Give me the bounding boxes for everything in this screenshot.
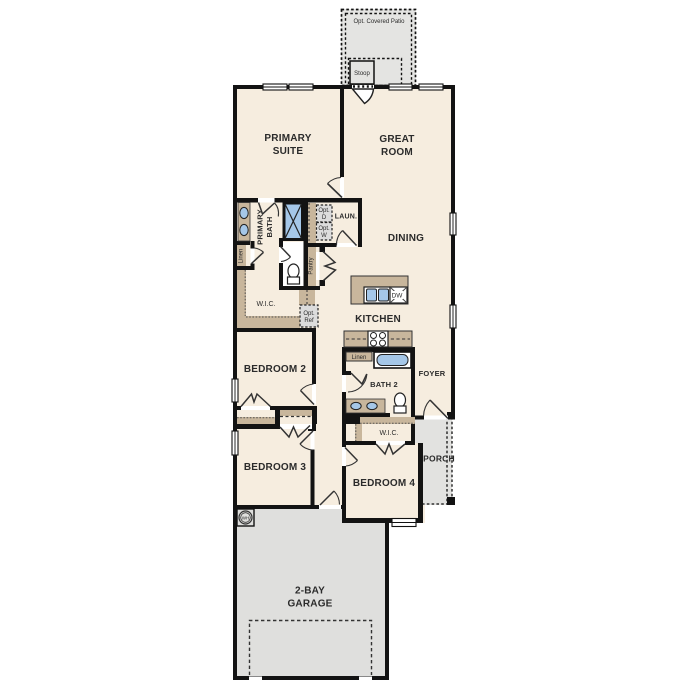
- svg-text:Pantry: Pantry: [309, 257, 315, 274]
- svg-text:Opt.: Opt.: [318, 208, 330, 214]
- svg-text:BEDROOM 2: BEDROOM 2: [244, 364, 307, 375]
- svg-text:ROOM: ROOM: [381, 147, 413, 158]
- svg-text:Linen: Linen: [239, 249, 245, 264]
- svg-text:BATH: BATH: [265, 216, 274, 237]
- svg-text:FOYER: FOYER: [419, 369, 446, 378]
- svg-text:SUITE: SUITE: [273, 146, 304, 157]
- svg-text:Opt.: Opt.: [318, 226, 330, 232]
- svg-text:PRIMARY: PRIMARY: [264, 133, 311, 144]
- svg-text:W.I.C.: W.I.C.: [379, 430, 398, 437]
- svg-text:LAUN.: LAUN.: [335, 214, 357, 221]
- svg-text:Opt. Covered Patio: Opt. Covered Patio: [353, 19, 405, 25]
- svg-text:W: W: [321, 233, 327, 239]
- svg-text:DW: DW: [392, 293, 404, 300]
- svg-text:DINING: DINING: [388, 233, 424, 244]
- svg-text:GARAGE: GARAGE: [287, 599, 332, 610]
- svg-text:WH: WH: [242, 516, 250, 521]
- svg-text:PORCH: PORCH: [423, 454, 455, 464]
- svg-text:GREAT: GREAT: [379, 134, 414, 145]
- svg-text:BATH 2: BATH 2: [370, 380, 398, 389]
- svg-text:PRIMARY: PRIMARY: [256, 209, 265, 245]
- svg-text:KITCHEN: KITCHEN: [355, 314, 401, 325]
- svg-text:2-BAY: 2-BAY: [295, 586, 325, 597]
- svg-text:Linen: Linen: [352, 355, 367, 361]
- svg-text:Opt.: Opt.: [303, 311, 315, 317]
- svg-text:BEDROOM 3: BEDROOM 3: [244, 462, 307, 473]
- svg-text:Stoop: Stoop: [354, 71, 370, 77]
- svg-text:BEDROOM 4: BEDROOM 4: [353, 478, 416, 489]
- svg-text:Ref: Ref: [304, 318, 314, 324]
- svg-text:W.I.C.: W.I.C.: [256, 301, 275, 308]
- svg-text:D: D: [322, 215, 327, 221]
